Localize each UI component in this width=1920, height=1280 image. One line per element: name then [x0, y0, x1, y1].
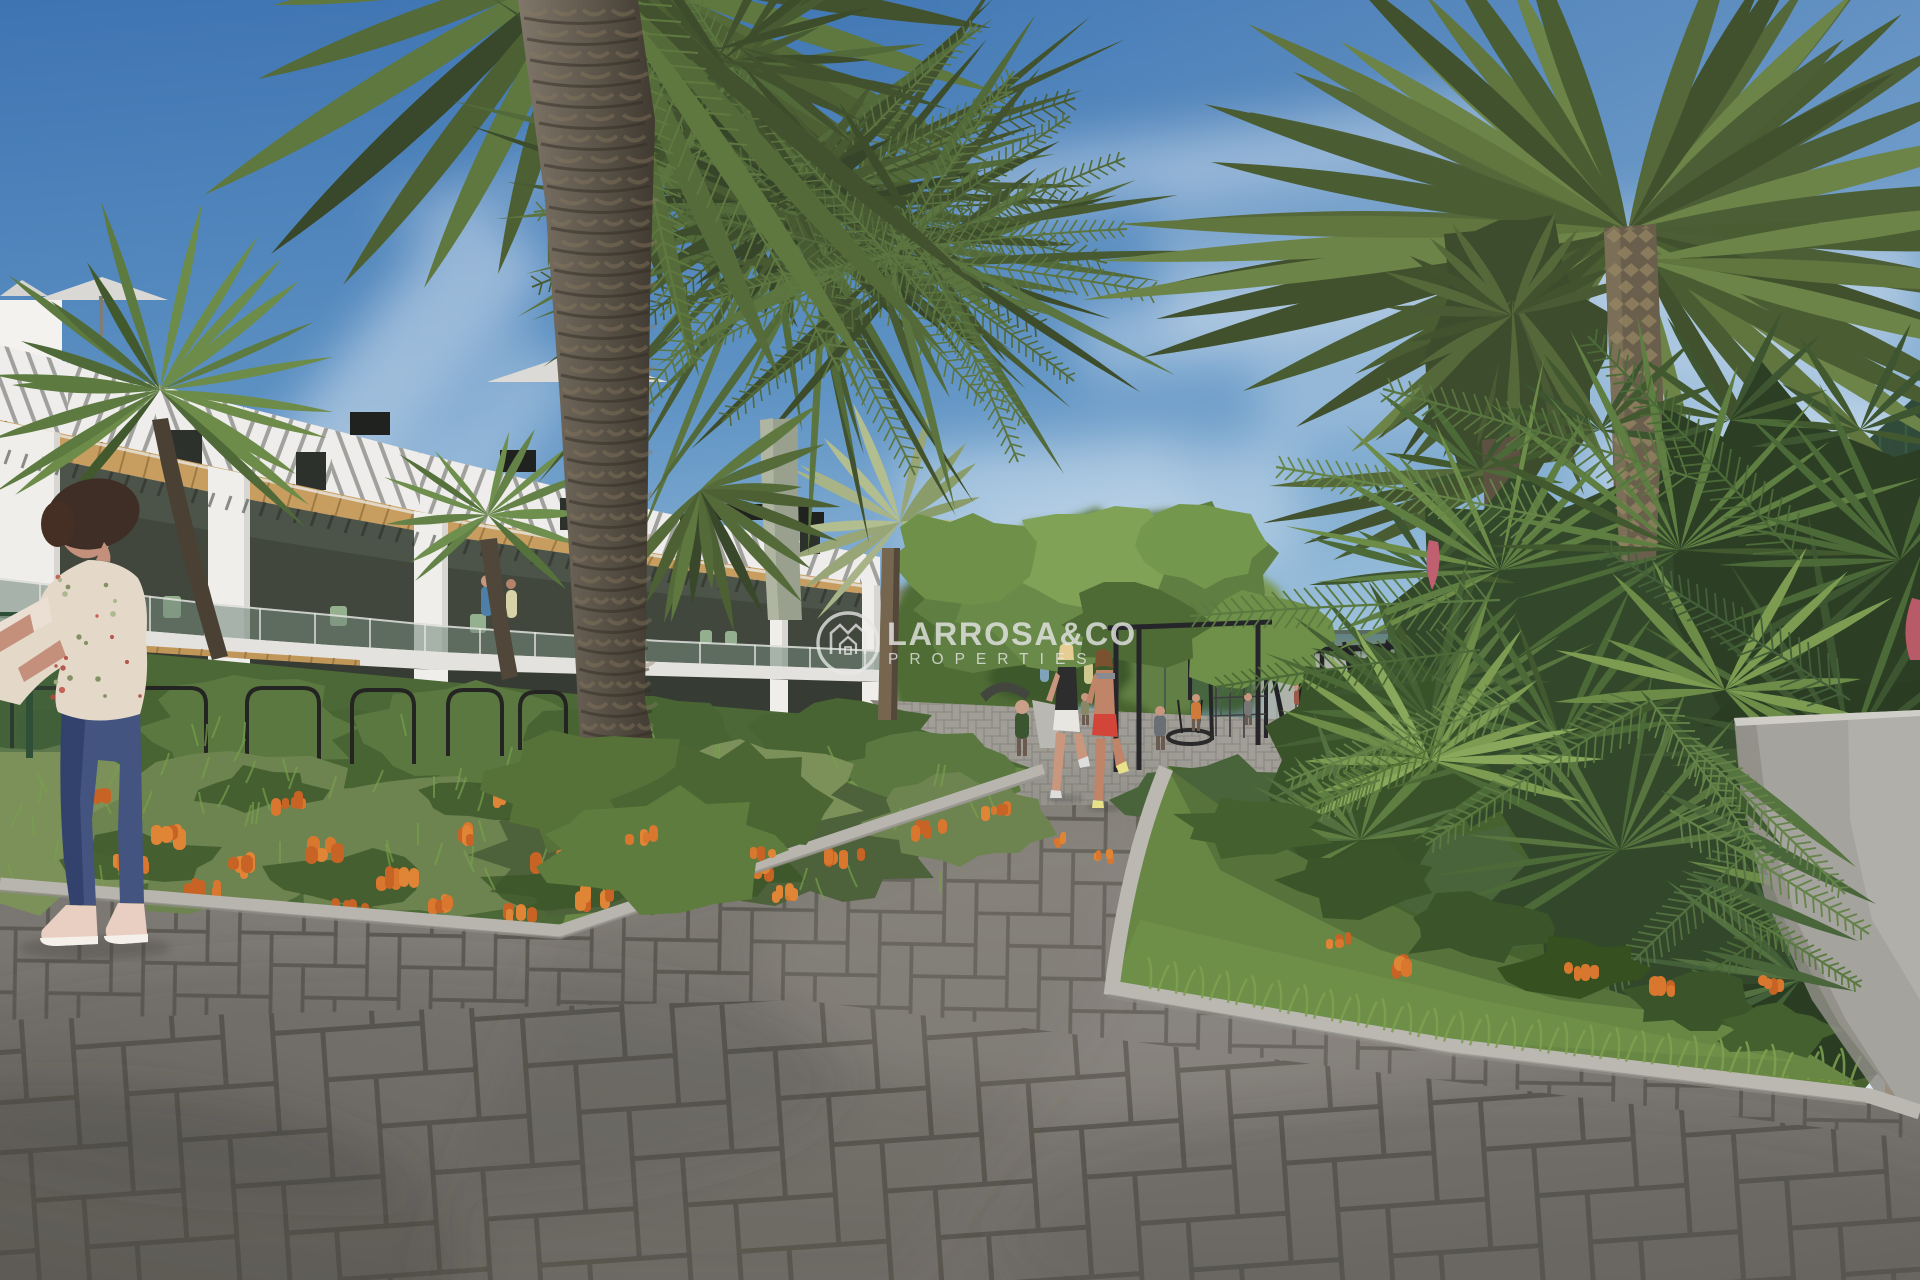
svg-text:LARROSA&CO: LARROSA&CO	[887, 616, 1137, 652]
svg-text:PROPERTIES: PROPERTIES	[888, 651, 1098, 668]
